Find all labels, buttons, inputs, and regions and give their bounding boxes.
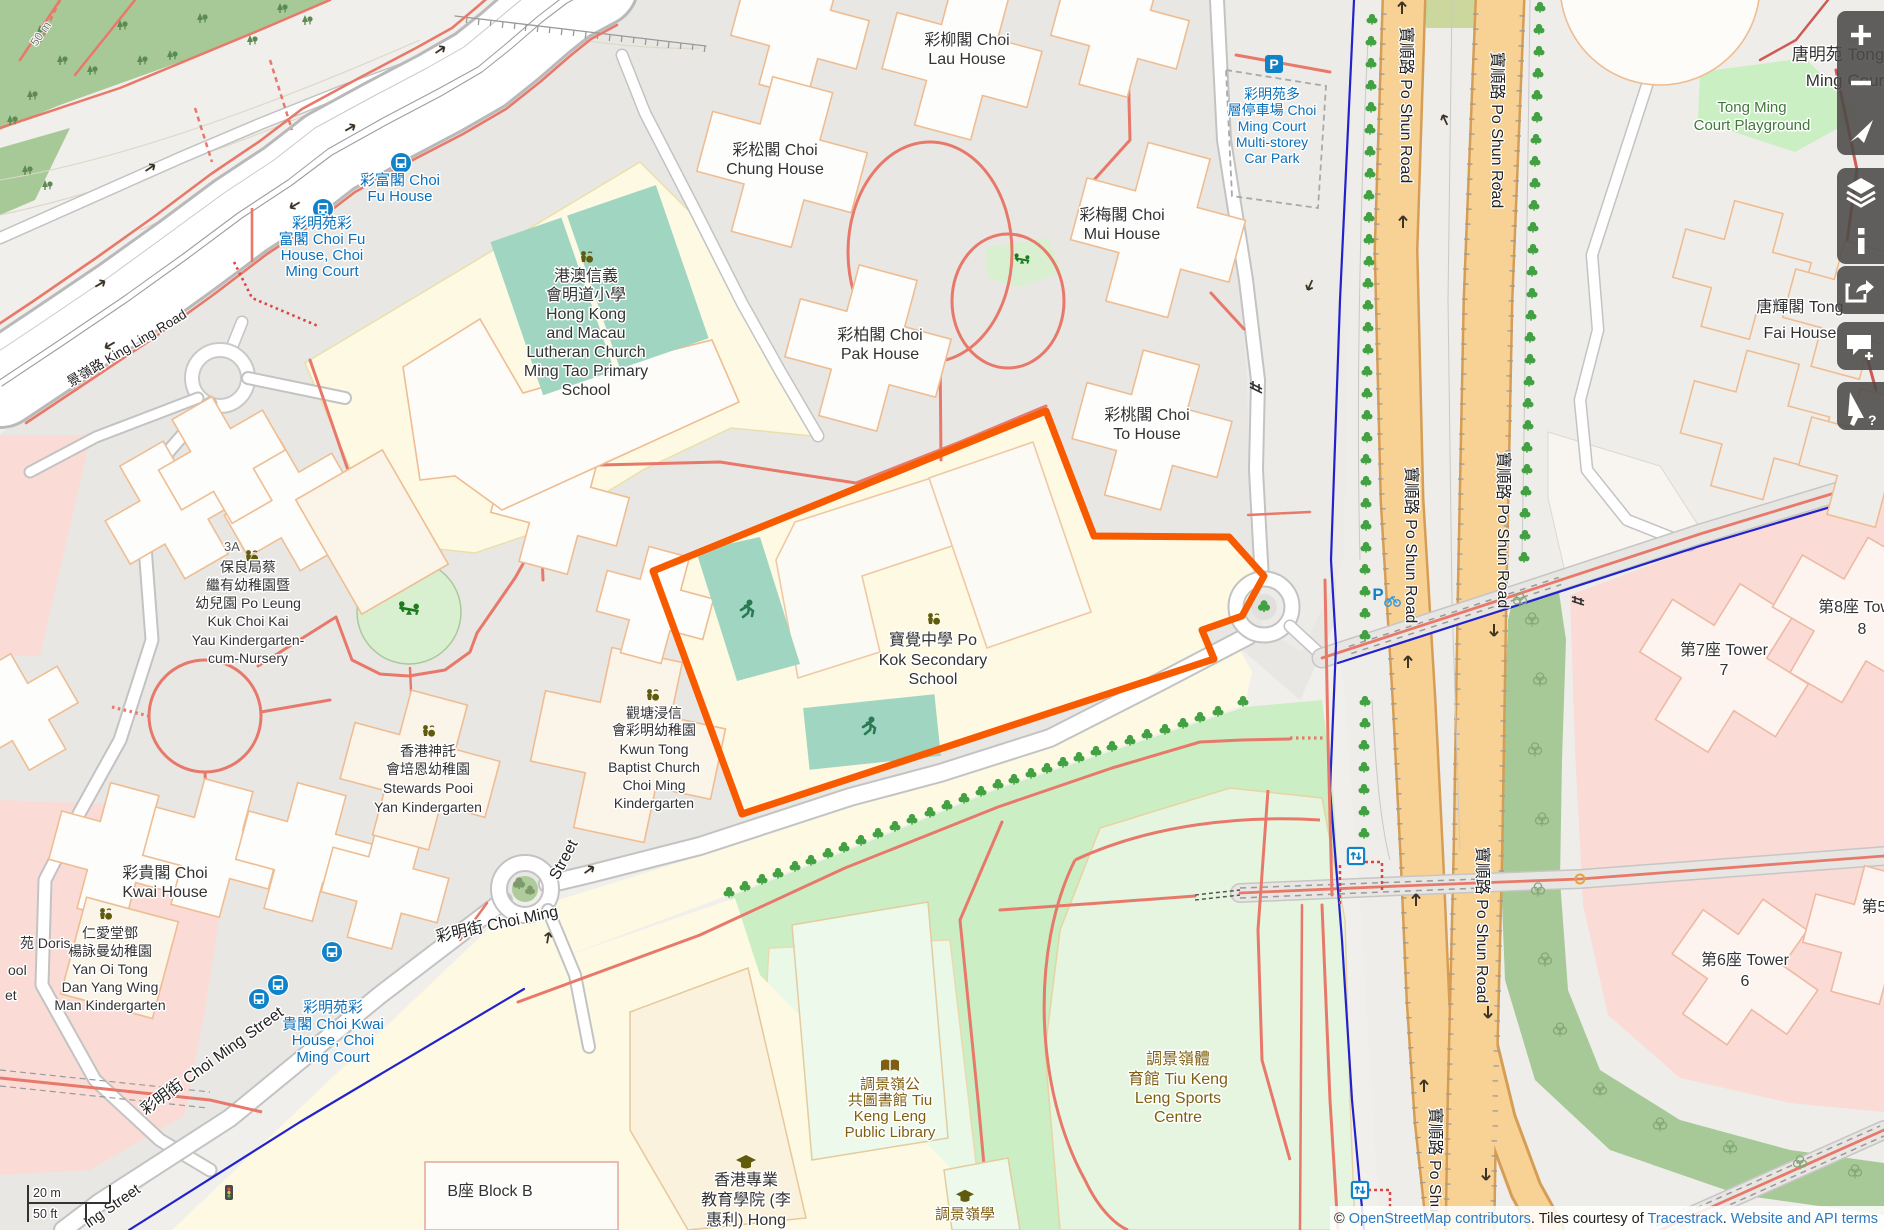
svg-text:Court Playground: Court Playground (1694, 117, 1811, 134)
svg-text:Kwai House: Kwai House (122, 884, 207, 901)
svg-text:調景嶺學: 調景嶺學 (935, 1205, 995, 1223)
svg-text:Lau House: Lau House (928, 51, 1005, 68)
svg-text:楊詠曼幼稚園: 楊詠曼幼稚園 (68, 943, 152, 959)
svg-text:育館 Tiu Keng: 育館 Tiu Keng (1128, 1070, 1228, 1088)
svg-text:Yan Kindergarten: Yan Kindergarten (374, 799, 482, 815)
svg-text:繼有幼稚園暨: 繼有幼稚園暨 (206, 577, 290, 593)
svg-text:P: P (1372, 585, 1383, 604)
svg-text:富閣 Choi Fu: 富閣 Choi Fu (279, 230, 366, 248)
svg-text:?: ? (1868, 412, 1877, 428)
svg-text:寶順路 Po Shun Road: 寶順路 Po Shun Road (1397, 27, 1416, 184)
svg-text:Stewards Pooi: Stewards Pooi (383, 780, 473, 796)
svg-text:彩梅閣 Choi: 彩梅閣 Choi (1079, 206, 1164, 224)
svg-text:20 m: 20 m (33, 1186, 61, 1200)
svg-text:Mui House: Mui House (1084, 226, 1161, 243)
svg-text:保良局蔡: 保良局蔡 (220, 559, 276, 575)
svg-text:Man Kindergarten: Man Kindergarten (54, 997, 165, 1013)
svg-text:彩明苑多: 彩明苑多 (1244, 86, 1300, 102)
svg-text:寶順路 Po Shun Road: 寶順路 Po Shun Road (1473, 847, 1492, 1004)
svg-text:P: P (1269, 56, 1278, 72)
svg-text:香港神託: 香港神託 (400, 743, 456, 759)
svg-text:彩貴閣 Choi: 彩貴閣 Choi (122, 864, 207, 882)
svg-text:7: 7 (1720, 662, 1729, 679)
svg-text:唐輝閣 Tong: 唐輝閣 Tong (1756, 298, 1843, 316)
svg-text:彩柳閣 Choi: 彩柳閣 Choi (924, 31, 1009, 49)
svg-text:苑 Doris: 苑 Doris (20, 935, 71, 951)
svg-text:Tong Ming: Tong Ming (1717, 99, 1786, 116)
svg-text:寶順路 Po Shu: 寶順路 Po Shu (1426, 1108, 1445, 1213)
svg-text:第6座 Tower: 第6座 Tower (1701, 951, 1790, 969)
svg-text:House, Choi: House, Choi (281, 247, 364, 264)
svg-text:Ming Court: Ming Court (296, 1049, 370, 1066)
svg-text:觀塘浸信: 觀塘浸信 (626, 705, 682, 721)
svg-text:Kok Secondary: Kok Secondary (879, 652, 988, 669)
svg-text:彩松閣 Choi: 彩松閣 Choi (732, 141, 817, 159)
svg-text:香港專業: 香港專業 (714, 1171, 778, 1189)
svg-text:仁愛堂鄧: 仁愛堂鄧 (82, 925, 138, 941)
svg-text:彩桃閣 Choi: 彩桃閣 Choi (1104, 406, 1189, 424)
svg-text:共圖書館 Tiu: 共圖書館 Tiu (848, 1092, 932, 1109)
svg-text:Lutheran Church: Lutheran Church (526, 344, 645, 361)
svg-text:Leng Sports: Leng Sports (1135, 1090, 1221, 1107)
svg-text:貴閣 Choi Kwai: 貴閣 Choi Kwai (282, 1016, 384, 1033)
svg-text:寶順路 Po Shun Road: 寶順路 Po Shun Road (1494, 452, 1513, 609)
svg-text:Choi Ming: Choi Ming (622, 777, 685, 793)
svg-text:調景嶺公: 調景嶺公 (860, 1076, 920, 1093)
svg-text:B座 Block B: B座 Block B (447, 1182, 532, 1200)
svg-text:Kwun Tong: Kwun Tong (619, 741, 688, 757)
svg-text:會培恩幼稚園: 會培恩幼稚園 (386, 761, 470, 777)
svg-text:彩柏閣 Choi: 彩柏閣 Choi (837, 326, 922, 344)
svg-text:ool: ool (8, 962, 27, 978)
svg-text:層停車場 Choi: 層停車場 Choi (1228, 102, 1317, 118)
svg-text:Yan Oi Tong: Yan Oi Tong (72, 961, 148, 977)
svg-text:寶順路 Po Shun Road: 寶順路 Po Shun Road (1402, 467, 1421, 624)
svg-text:50 ft: 50 ft (33, 1207, 58, 1221)
svg-text:會明道小學: 會明道小學 (546, 286, 626, 304)
svg-text:et: et (5, 987, 17, 1003)
svg-text:幼兒園 Po Leung: 幼兒園 Po Leung (195, 595, 301, 611)
svg-text:Baptist Church: Baptist Church (608, 759, 700, 775)
svg-text:惠利) Hong: 惠利) Hong (706, 1211, 786, 1229)
svg-text:and Macau: and Macau (546, 325, 625, 342)
svg-text:© OpenStreetMap contributors.: © OpenStreetMap contributors. Tiles cour… (1334, 1211, 1878, 1227)
svg-text:8: 8 (1858, 621, 1867, 638)
svg-text:House, Choi: House, Choi (292, 1032, 375, 1049)
svg-text:彩富閣 Choi: 彩富閣 Choi (360, 171, 440, 189)
svg-text:第8座 Tow: 第8座 Tow (1818, 598, 1884, 616)
svg-text:Dan Yang Wing: Dan Yang Wing (62, 979, 159, 995)
svg-text:Centre: Centre (1154, 1109, 1202, 1126)
svg-text:港澳信義: 港澳信義 (554, 267, 618, 285)
svg-text:Kuk Choi Kai: Kuk Choi Kai (208, 613, 289, 629)
svg-text:寶覺中學 Po: 寶覺中學 Po (889, 630, 977, 649)
svg-text:Multi-storey: Multi-storey (1236, 134, 1308, 150)
svg-text:Chung House: Chung House (726, 161, 824, 178)
svg-text:3A: 3A (224, 539, 240, 554)
svg-text:Keng Leng: Keng Leng (854, 1108, 927, 1125)
svg-text:Fu House: Fu House (367, 188, 432, 205)
svg-text:教育學院 (李: 教育學院 (李 (701, 1191, 791, 1209)
svg-text:會彩明幼稚園: 會彩明幼稚園 (612, 722, 696, 738)
svg-text:第7座 Tower: 第7座 Tower (1680, 641, 1769, 659)
svg-text:第5: 第5 (1862, 898, 1884, 916)
svg-text:Yau Kindergarten-: Yau Kindergarten- (192, 632, 305, 648)
svg-text:Ming Court: Ming Court (1238, 118, 1307, 134)
svg-text:Pak House: Pak House (841, 346, 919, 363)
svg-text:Car Park: Car Park (1244, 150, 1300, 166)
svg-text:School: School (562, 382, 611, 399)
svg-text:Hong Kong: Hong Kong (546, 306, 626, 323)
svg-text:彩明苑彩: 彩明苑彩 (292, 215, 352, 232)
svg-text:寶順路 Po Shun Road: 寶順路 Po Shun Road (1488, 52, 1507, 209)
svg-text:調景嶺體: 調景嶺體 (1146, 1050, 1210, 1068)
svg-text:cum-Nursery: cum-Nursery (208, 650, 288, 666)
svg-text:6: 6 (1741, 973, 1750, 990)
svg-text:Fai House: Fai House (1764, 325, 1837, 342)
svg-text:Public Library: Public Library (845, 1124, 936, 1141)
svg-text:Kindergarten: Kindergarten (614, 795, 694, 811)
svg-text:Ming Court: Ming Court (285, 263, 359, 280)
svg-text:彩明苑彩: 彩明苑彩 (303, 999, 363, 1016)
svg-text:To House: To House (1113, 426, 1181, 443)
svg-text:School: School (909, 671, 958, 688)
svg-text:Ming Tao Primary: Ming Tao Primary (524, 363, 648, 380)
